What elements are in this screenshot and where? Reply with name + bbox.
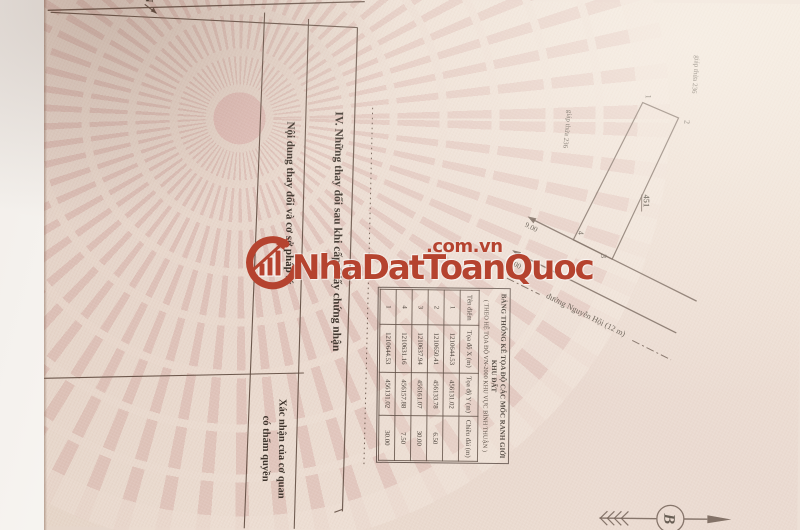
table-row: 11210644.53456131.0230.00	[378, 289, 396, 460]
adjacent-parcel-label: giáp thửa 236	[690, 55, 701, 94]
table-cell: 456131.02	[379, 372, 395, 416]
page-edge-shadow	[44, 0, 47, 530]
table-cell: 30.00	[378, 415, 394, 460]
table-cell	[442, 416, 458, 461]
point-label: 1	[644, 95, 653, 99]
parcel-number: 451	[642, 195, 652, 208]
table-row: 11210644.53456131.02	[442, 290, 460, 461]
compass-letter: B	[660, 512, 677, 524]
table-cell: 7.50	[394, 416, 410, 461]
street-label: đường Nguyễn Hội (12 m)	[545, 291, 627, 338]
coordinate-table-title: BẢNG THỐNG KÊ TỌA ĐỘ CÁC MỐC RANH GIỚI K…	[488, 290, 508, 462]
table-row: 41210631.16456157.887.50	[394, 289, 412, 460]
photo-background	[0, 0, 44, 530]
coordinate-table-header-cell: Tọa độ X (m)	[459, 325, 478, 373]
photo-of-land-certificate: 1 2 3 4 451 9.00 6.00 đường Nguyễn Hội (…	[0, 0, 800, 530]
column-header-confirmation: Xác nhận của cơ quan có thẩm quyền	[257, 382, 289, 516]
table-cell: 1210631.16	[395, 325, 411, 373]
table-cell: 456157.88	[395, 372, 411, 416]
coordinate-table-header-cell: Tọa độ Y (m)	[459, 373, 478, 417]
table-cell: 1210650.41	[427, 325, 443, 373]
table-cell: 1210644.53	[443, 325, 459, 373]
table-cell: 1210637.94	[411, 325, 427, 373]
coord-table-body: 11210644.53456131.0221210650.41456133.78…	[378, 289, 460, 461]
watermark: NhaDatToanQuoc .com.vn	[240, 226, 540, 306]
watermark-domain-text: .com.vn	[426, 236, 503, 257]
table-cell: 6.50	[426, 416, 442, 461]
table-cell: 1210644.53	[379, 324, 395, 372]
table-row: 31210637.94456161.0730.00	[410, 290, 428, 461]
point-label: 4	[576, 231, 585, 235]
point-label: 2	[682, 120, 691, 124]
brand-logo-icon	[240, 232, 298, 296]
table-row: 21210650.41456133.786.50	[426, 290, 444, 461]
coordinate-table: BẢNG THỐNG KÊ TỌA ĐỘ CÁC MỐC RANH GIỚI K…	[376, 287, 511, 464]
small-north-arrowhead-icon	[151, 7, 157, 13]
coordinate-table-header-cell: Chiều dài (m)	[458, 416, 477, 461]
adjacent-parcel-label: giáp thửa 236	[561, 110, 573, 150]
table-cell: 30.00	[410, 416, 426, 461]
point-label: 3	[599, 254, 608, 258]
north-letter: N	[143, 0, 155, 2]
north-arrowhead-icon	[707, 515, 731, 523]
coordinate-table-header-row: Tên điểmTọa độ X (m)Tọa độ Y (m)Chiều dà…	[458, 290, 479, 461]
table-cell: 456133.78	[427, 372, 443, 416]
table-cell: 456161.07	[411, 372, 427, 416]
table-cell: 456131.02	[443, 373, 459, 417]
